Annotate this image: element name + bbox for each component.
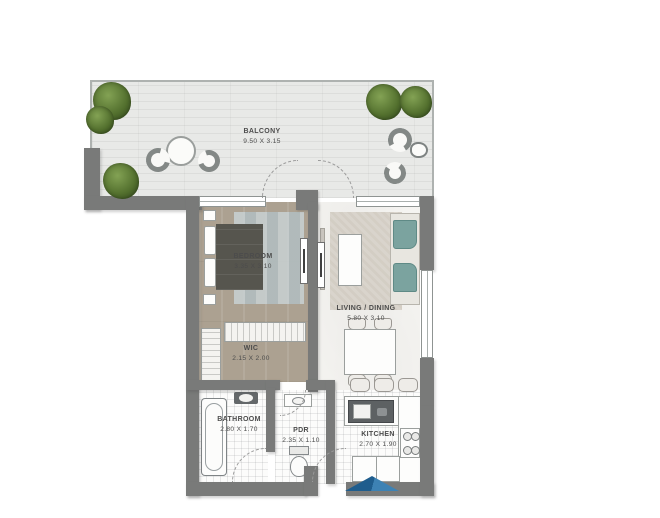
sofa-cushion (393, 263, 417, 292)
bedroom-label: BEDROOM 3.35 X 3.10 (233, 252, 272, 272)
coffee-table (338, 234, 362, 286)
stove (400, 428, 420, 458)
balcony-label: BALCONY 9.50 X 3.15 (243, 127, 281, 147)
balcony-stone (410, 142, 428, 158)
pdr-name: PDR (282, 426, 320, 436)
toilet-tank (289, 446, 309, 455)
wall-right-bottom (420, 406, 434, 496)
sliding-door-panel (300, 238, 308, 284)
window-bedroom-top (199, 196, 266, 207)
floor-plan-canvas: BALCONY 9.50 X 3.15 BEDROOM 3.35 X 3.10 … (0, 0, 660, 518)
bar-stool (350, 378, 370, 392)
wall-bedroom-living-divider (308, 202, 318, 392)
balcony-name: BALCONY (243, 127, 281, 137)
bathroom-dims: 2.80 X 1.70 (217, 425, 261, 435)
window-living-top (356, 196, 420, 207)
kitchen-cabinet (352, 456, 400, 482)
wall-step-horizontal (84, 196, 202, 210)
bed-pillow (204, 258, 216, 287)
kitchen-name: KITCHEN (359, 430, 397, 440)
bar-stool (398, 378, 418, 392)
living-name: LIVING / DINING (337, 304, 396, 314)
bed-pillow (204, 226, 216, 255)
bathtub-inner (205, 403, 223, 471)
kitchen-dims: 2.70 X 1.90 (359, 440, 397, 450)
pdr-dims: 2.35 X 1.10 (282, 436, 320, 446)
kitchen-sink-unit (348, 400, 394, 423)
living-dims: 5.80 X 3.10 (337, 314, 396, 324)
bathtub (201, 398, 227, 476)
wic-name: WIC (232, 344, 270, 354)
wall-bottom-left (186, 482, 306, 496)
bathroom-sink-bowl (239, 394, 253, 402)
bathroom-sink (234, 392, 258, 404)
wic-label: WIC 2.15 X 2.00 (232, 344, 270, 364)
plant-icon (366, 84, 402, 120)
sofa-cushion (393, 220, 417, 249)
kitchen-label: KITCHEN 2.70 X 1.90 (359, 430, 397, 450)
bathroom-label: BATHROOM 2.80 X 1.70 (217, 415, 261, 435)
stove-burner (411, 446, 420, 455)
balcony-table (166, 136, 196, 166)
wic-wardrobe (201, 328, 221, 382)
window-living-right (421, 270, 433, 358)
sofa (390, 213, 420, 305)
pdr-label: PDR 2.35 X 1.10 (282, 426, 320, 446)
wic-wardrobe (224, 322, 306, 342)
bar-stool (374, 378, 394, 392)
balcony-dims: 9.50 X 3.15 (243, 137, 281, 147)
plant-icon (103, 163, 139, 199)
wic-dims: 2.15 X 2.00 (232, 354, 270, 364)
nightstand (203, 294, 216, 305)
living-label: LIVING / DINING 5.80 X 3.10 (337, 304, 396, 324)
wall-right-top (420, 196, 434, 270)
dining-table (344, 329, 396, 375)
bathroom-name: BATHROOM (217, 415, 261, 425)
wall-left-main (186, 196, 199, 496)
stove-burner (411, 432, 420, 441)
wall-wic-bathroom (186, 380, 276, 390)
sliding-door-panel (317, 242, 325, 288)
kitchen-sink (353, 404, 371, 419)
plant-icon (400, 86, 432, 118)
nightstand (203, 210, 216, 221)
wall-bathroom-pdr (266, 388, 275, 452)
bedroom-dims: 3.35 X 3.10 (233, 262, 272, 272)
plant-icon (86, 106, 114, 134)
bedroom-name: BEDROOM (233, 252, 272, 262)
kitchen-faucet (377, 408, 387, 416)
wall-right-mid (420, 358, 434, 406)
